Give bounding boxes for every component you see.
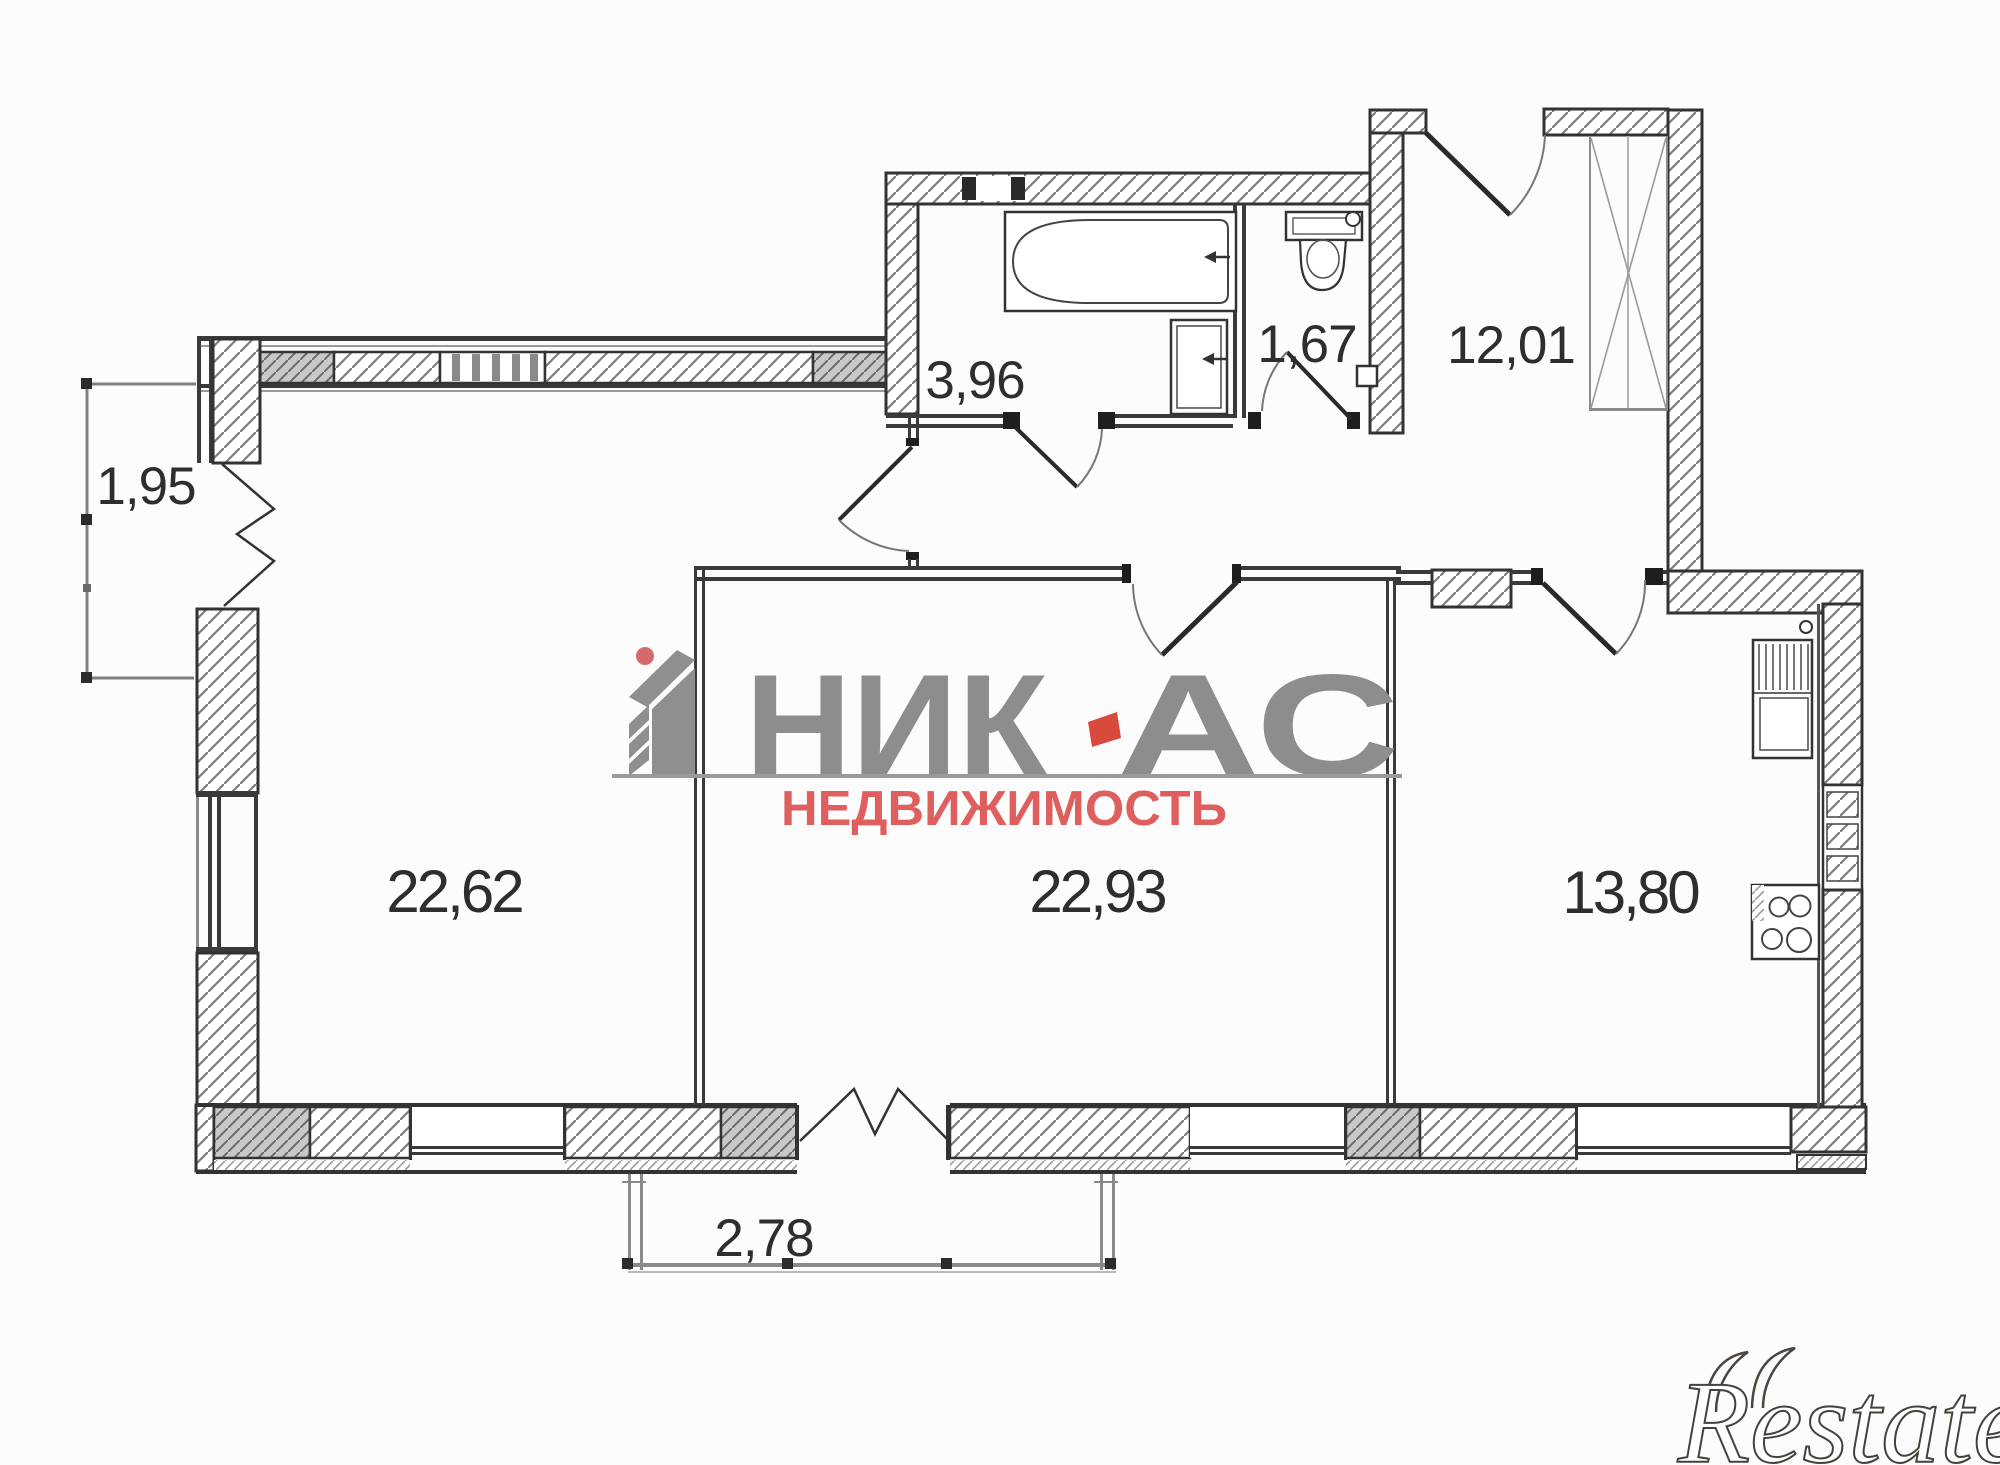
svg-text:12,01: 12,01 bbox=[1447, 316, 1575, 375]
svg-text:1,67: 1,67 bbox=[1257, 315, 1356, 374]
svg-text:НЕДВИЖИМОСТЬ: НЕДВИЖИМОСТЬ bbox=[781, 782, 1227, 836]
svg-text:Restate: Restate bbox=[1677, 1357, 2000, 1465]
svg-text:22,93: 22,93 bbox=[1029, 858, 1165, 925]
svg-text:1,95: 1,95 bbox=[96, 457, 195, 516]
svg-text:13,80: 13,80 bbox=[1562, 859, 1699, 926]
svg-text:2,78: 2,78 bbox=[714, 1209, 813, 1268]
svg-text:3,96: 3,96 bbox=[925, 351, 1024, 410]
svg-text:22,62: 22,62 bbox=[386, 858, 522, 925]
